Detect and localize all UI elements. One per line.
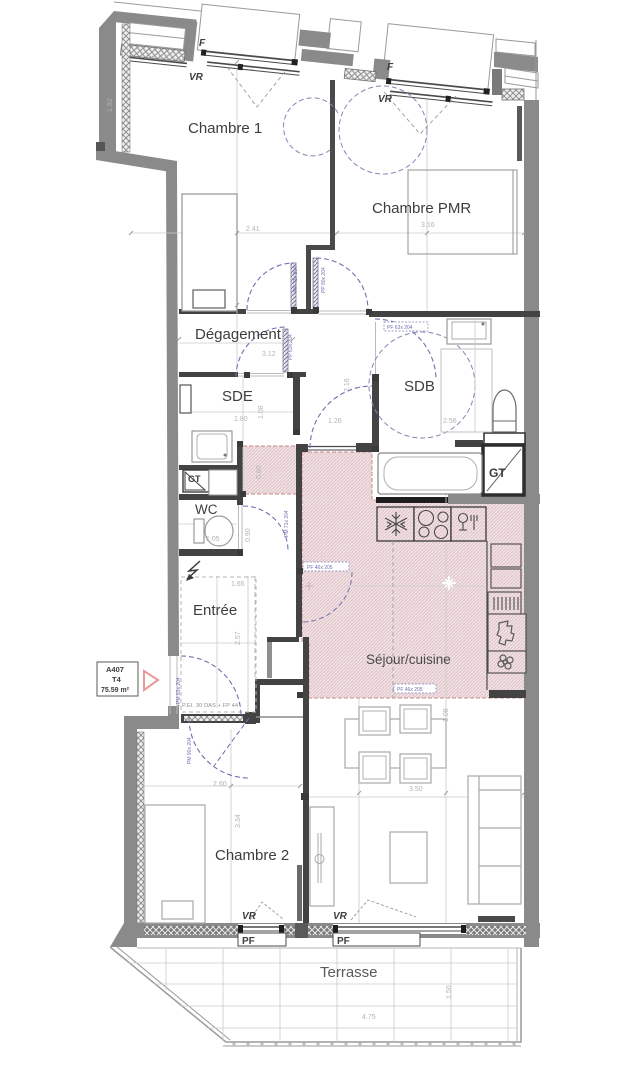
svg-text:PF: PF	[242, 936, 255, 947]
svg-text:Séjour/cuisine: Séjour/cuisine	[366, 652, 451, 667]
svg-text:1.26: 1.26	[328, 418, 342, 425]
svg-text:0.80: 0.80	[256, 465, 263, 479]
svg-text:+ P.EI. 30 DAS + FP 44: + P.EI. 30 DAS + FP 44	[177, 703, 238, 709]
svg-text:WC: WC	[195, 502, 218, 517]
svg-text:4.75: 4.75	[362, 1014, 376, 1021]
svg-text:1.08: 1.08	[443, 708, 450, 722]
svg-text:1.92: 1.92	[107, 98, 114, 112]
svg-text:Chambre PMR: Chambre PMR	[372, 200, 471, 217]
svg-text:2.57: 2.57	[235, 631, 242, 645]
svg-text:Chambre 2: Chambre 2	[215, 847, 289, 864]
svg-text:VR: VR	[333, 911, 348, 922]
svg-text:Chambre 1: Chambre 1	[188, 120, 262, 137]
svg-text:GT: GT	[489, 466, 506, 480]
svg-text:2.60: 2.60	[213, 781, 227, 788]
svg-text:75.59 m²: 75.59 m²	[101, 687, 130, 694]
svg-text:F: F	[387, 62, 394, 73]
svg-text:3.16: 3.16	[421, 222, 435, 229]
svg-text:PP 80x 204: PP 80x 204	[321, 267, 327, 293]
svg-text:2.41: 2.41	[246, 226, 260, 233]
svg-text:Terrasse: Terrasse	[320, 964, 378, 981]
svg-text:3.12: 3.12	[262, 351, 276, 358]
svg-text:3.34: 3.34	[235, 814, 242, 828]
svg-text:Entrée: Entrée	[193, 602, 237, 619]
svg-text:1.50: 1.50	[446, 985, 453, 999]
svg-text:T4: T4	[112, 675, 122, 684]
svg-text:PM 90x 204: PM 90x 204	[187, 737, 193, 764]
svg-text:1.80: 1.80	[234, 416, 248, 423]
svg-text:A407: A407	[106, 665, 124, 674]
svg-text:PF 63x 204: PF 63x 204	[387, 325, 413, 331]
svg-text:PF 46x 205: PF 46x 205	[397, 687, 423, 693]
svg-text:VR: VR	[378, 94, 393, 105]
svg-text:SDE: SDE	[222, 388, 253, 405]
svg-text:VR: VR	[189, 72, 204, 83]
svg-text:1.05: 1.05	[206, 536, 220, 543]
svg-text:1.08: 1.08	[258, 405, 265, 419]
svg-text:GT: GT	[188, 474, 201, 484]
svg-text:2.16: 2.16	[344, 378, 351, 392]
svg-text:PM 93x 204: PM 93x 204	[176, 677, 182, 704]
svg-text:3.50: 3.50	[409, 786, 423, 793]
svg-text:PP 71x 204: PP 71x 204	[293, 266, 299, 292]
svg-text:VR: VR	[242, 911, 257, 922]
svg-text:PP 63x 204: PP 63x 204	[288, 334, 294, 360]
svg-text:PF 46x 205: PF 46x 205	[307, 565, 333, 571]
svg-text:1.65: 1.65	[231, 581, 245, 588]
svg-text:SDB: SDB	[404, 378, 435, 395]
svg-text:2.56: 2.56	[443, 418, 457, 425]
svg-text:0.90: 0.90	[245, 528, 252, 542]
svg-text:Dégagement: Dégagement	[195, 326, 282, 343]
svg-text:PF: PF	[337, 936, 350, 947]
svg-text:F: F	[199, 38, 206, 49]
svg-text:PM 71x 204: PM 71x 204	[284, 510, 290, 537]
